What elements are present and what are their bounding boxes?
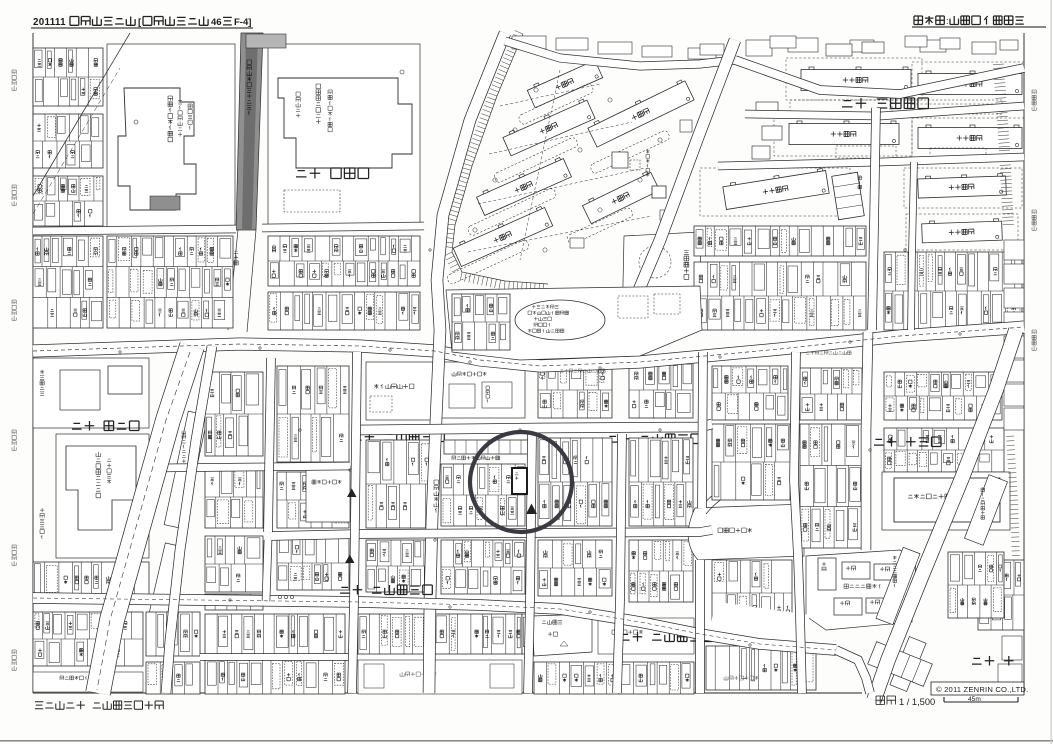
svg-text:F-4]: F-4] [234,17,251,28]
svg-text:45m: 45m [968,696,981,703]
svg-text:46: 46 [211,17,222,28]
svg-text:1 / 1,500: 1 / 1,500 [899,697,935,707]
svg-text:© 2011 ZENRIN CO.,LTD.: © 2011 ZENRIN CO.,LTD. [936,685,1028,694]
svg-text:201111: 201111 [33,17,66,28]
svg-text::: : [946,16,949,26]
